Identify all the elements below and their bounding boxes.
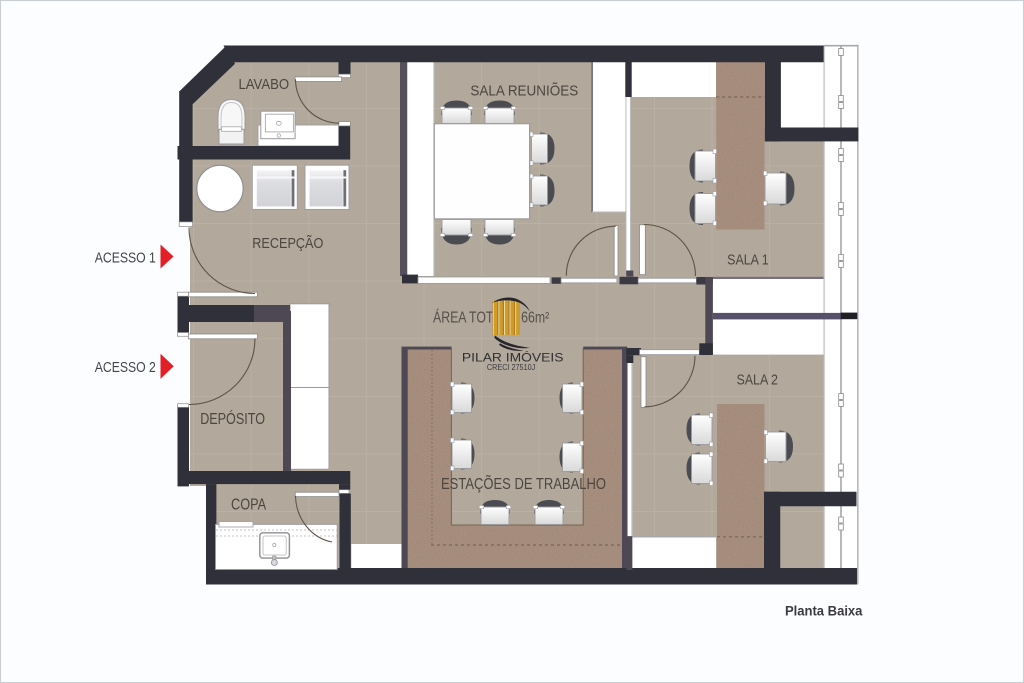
- svg-text:Planta Baixa: Planta Baixa: [785, 603, 863, 619]
- svg-text:ESTAÇÕES DE TRABALHO: ESTAÇÕES DE TRABALHO: [441, 473, 606, 493]
- svg-text:ACESSO 1: ACESSO 1: [95, 250, 156, 267]
- svg-text:ACESSO 2: ACESSO 2: [95, 359, 156, 376]
- svg-text:COPA: COPA: [231, 497, 267, 514]
- svg-text:SALA 1: SALA 1: [727, 251, 769, 268]
- svg-text:RECEPÇÃO: RECEPÇÃO: [252, 235, 323, 252]
- svg-text:CRECI 27510J: CRECI 27510J: [487, 363, 535, 372]
- svg-text:SALA 2: SALA 2: [736, 371, 778, 388]
- svg-text:DEPÓSITO: DEPÓSITO: [200, 411, 265, 428]
- svg-text:ÁREA TOTAL = 66m²: ÁREA TOTAL = 66m²: [433, 310, 549, 327]
- svg-text:LAVABO: LAVABO: [238, 76, 289, 93]
- svg-text:SALA REUNIÕES: SALA REUNIÕES: [470, 83, 578, 100]
